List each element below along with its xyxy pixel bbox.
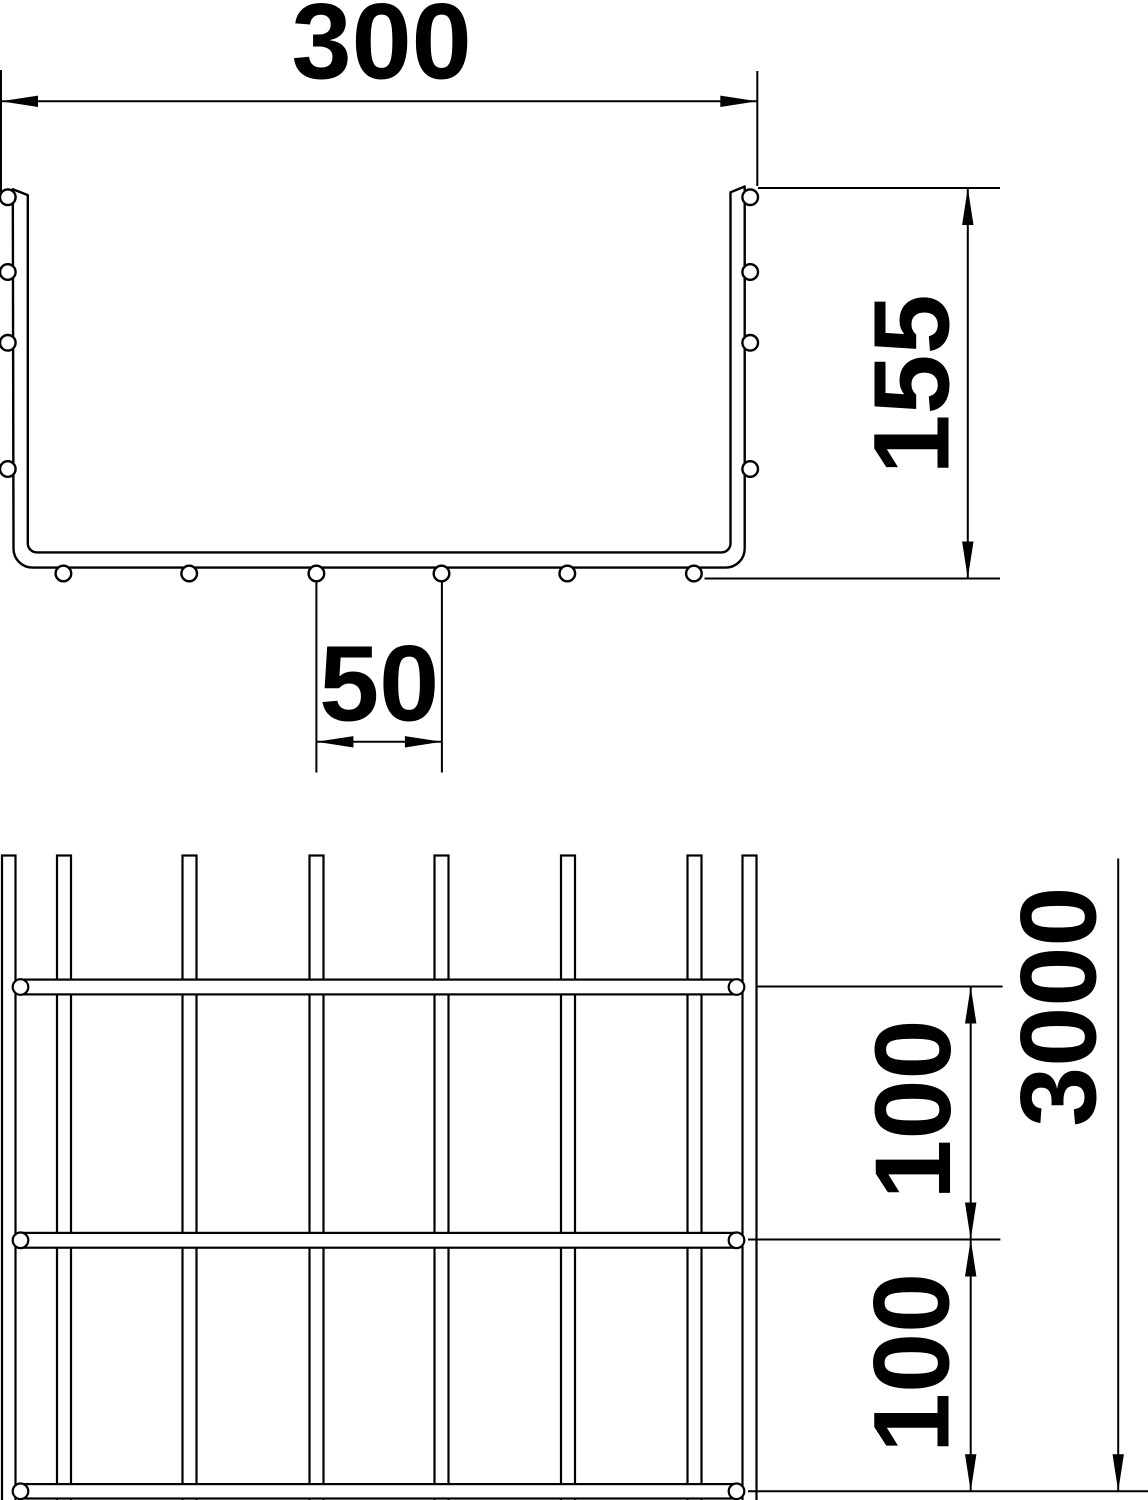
- svg-text:3000: 3000: [998, 887, 1119, 1127]
- svg-text:100: 100: [852, 1019, 973, 1199]
- svg-text:100: 100: [851, 1273, 972, 1453]
- svg-text:155: 155: [851, 294, 972, 474]
- svg-text:50: 50: [319, 623, 439, 744]
- svg-text:300: 300: [292, 0, 472, 101]
